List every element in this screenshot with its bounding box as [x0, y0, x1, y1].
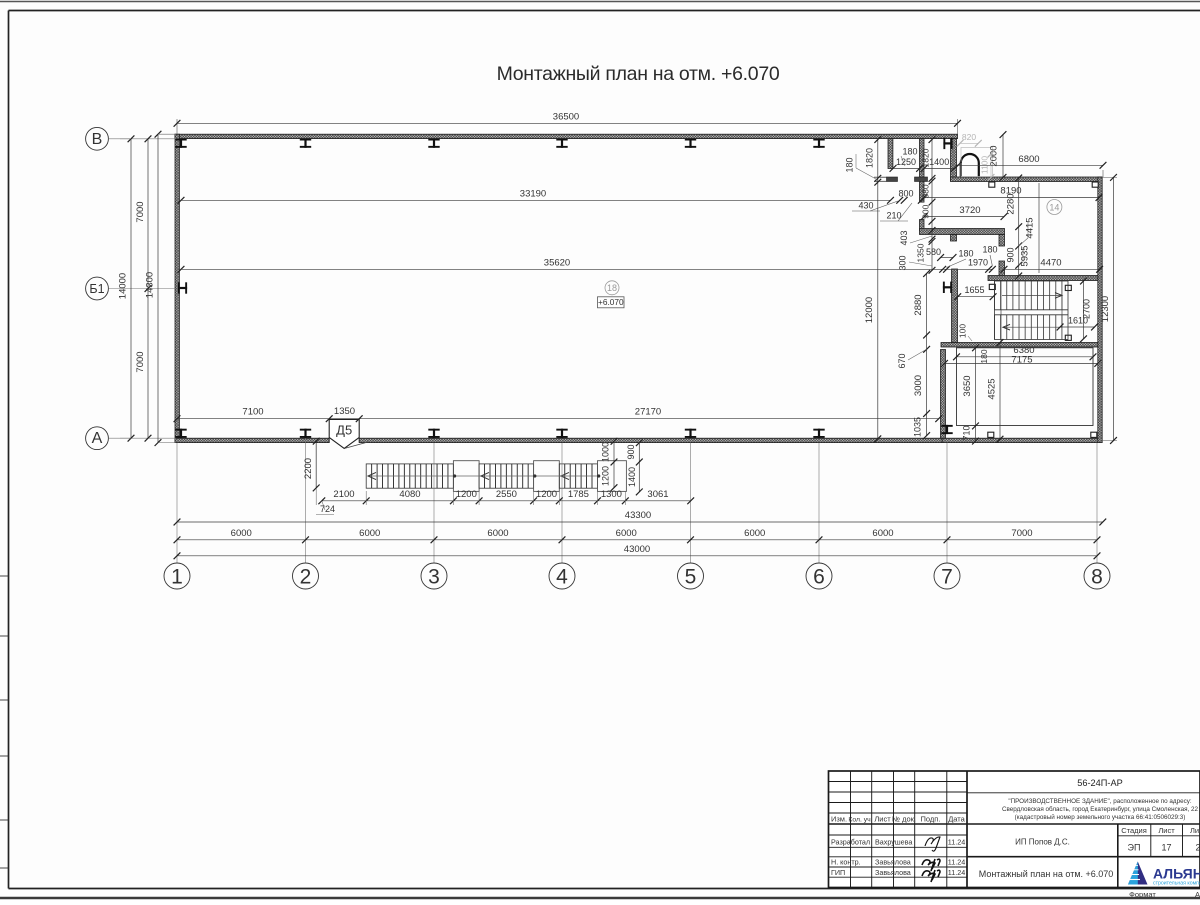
svg-text:14300: 14300 [145, 272, 156, 298]
svg-text:1: 1 [171, 566, 183, 589]
svg-text:820: 820 [962, 132, 976, 142]
svg-text:6000: 6000 [487, 528, 508, 539]
svg-text:Изм.: Изм. [831, 815, 847, 824]
svg-text:Листов: Листов [1190, 826, 1200, 835]
svg-text:3000: 3000 [913, 375, 924, 396]
svg-text:7000: 7000 [1011, 528, 1032, 539]
svg-text:Кол. уч.: Кол. уч. [848, 817, 872, 824]
svg-text:1000: 1000 [601, 442, 611, 462]
svg-text:6000: 6000 [872, 528, 893, 539]
svg-text:4: 4 [556, 566, 568, 589]
svg-text:Монтажный план на отм. +6.070: Монтажный план на отм. +6.070 [979, 869, 1114, 879]
svg-text:Б1: Б1 [89, 282, 104, 296]
svg-text:180: 180 [845, 157, 855, 172]
svg-text:2280: 2280 [1006, 193, 1017, 214]
svg-text:6000: 6000 [616, 528, 637, 539]
svg-text:12300: 12300 [1100, 296, 1111, 322]
svg-text:Дата: Дата [948, 815, 965, 824]
svg-text:11.24: 11.24 [948, 837, 965, 846]
svg-text:ЭП: ЭП [1128, 843, 1141, 853]
svg-text:Н. контр.: Н. контр. [831, 858, 861, 867]
svg-text:8: 8 [1091, 566, 1103, 589]
svg-text:+6.070: +6.070 [598, 297, 624, 307]
svg-text:Стадия: Стадия [1121, 826, 1147, 835]
svg-text:АЛЬЯНС: АЛЬЯНС [1153, 866, 1200, 882]
svg-text:18: 18 [607, 283, 617, 293]
svg-text:1035: 1035 [913, 417, 923, 437]
svg-text:7: 7 [941, 566, 953, 589]
svg-text:7000: 7000 [135, 201, 146, 222]
svg-text:180: 180 [979, 349, 989, 363]
svg-text:724: 724 [320, 504, 335, 514]
svg-text:11.24: 11.24 [948, 868, 965, 877]
svg-text:Завьялова: Завьялова [875, 858, 911, 867]
svg-text:5: 5 [685, 566, 697, 589]
svg-text:Свердловская область, город Ек: Свердловская область, город Екатеринбург… [1002, 805, 1199, 813]
svg-text:300: 300 [898, 255, 908, 270]
svg-text:800: 800 [898, 189, 913, 199]
svg-text:2100: 2100 [333, 489, 354, 500]
svg-text:6: 6 [813, 566, 825, 589]
svg-text:33190: 33190 [520, 189, 546, 200]
svg-text:Разработал: Разработал [831, 837, 870, 846]
svg-text:4080: 4080 [399, 489, 420, 500]
svg-text:27170: 27170 [635, 407, 661, 418]
svg-text:1785: 1785 [568, 489, 589, 500]
svg-text:3720: 3720 [959, 205, 980, 216]
svg-text:5935: 5935 [1020, 245, 1031, 266]
svg-text:ГИП: ГИП [831, 868, 845, 877]
svg-text:3: 3 [428, 566, 440, 589]
svg-text:1200: 1200 [536, 489, 557, 500]
svg-text:35620: 35620 [544, 257, 570, 268]
svg-text:17: 17 [1161, 843, 1171, 853]
svg-text:980: 980 [921, 184, 931, 198]
svg-text:Монтажный план на отм. +6.070: Монтажный план на отм. +6.070 [497, 63, 780, 85]
svg-text:А3: А3 [1195, 890, 1200, 899]
svg-text:"ПРОИЗВОДСТВЕННОЕ ЗДАНИЕ", рас: "ПРОИЗВОДСТВЕННОЕ ЗДАНИЕ", расположенное… [1008, 798, 1192, 805]
svg-text:1820: 1820 [921, 148, 931, 167]
svg-text:(кадастровый номер земельного: (кадастровый номер земельного участка 66… [1015, 813, 1186, 821]
svg-text:А: А [92, 430, 103, 447]
svg-text:4415: 4415 [1025, 217, 1036, 238]
svg-text:180: 180 [982, 245, 997, 255]
svg-text:1350: 1350 [334, 406, 355, 417]
svg-text:2: 2 [300, 566, 312, 589]
svg-text:900: 900 [1006, 247, 1016, 262]
svg-text:1655: 1655 [964, 285, 984, 295]
svg-text:3061: 3061 [647, 489, 668, 500]
svg-text:строительная компания: строительная компания [1153, 880, 1200, 886]
svg-text:710: 710 [962, 425, 972, 440]
svg-text:1820: 1820 [864, 148, 874, 168]
svg-text:2550: 2550 [496, 489, 517, 500]
svg-text:Лист: Лист [874, 815, 891, 824]
svg-text:1400: 1400 [627, 467, 637, 487]
svg-text:6000: 6000 [744, 528, 765, 539]
svg-text:6800: 6800 [1018, 154, 1039, 165]
svg-text:6000: 6000 [359, 528, 380, 539]
svg-text:7100: 7100 [242, 407, 263, 418]
svg-text:430: 430 [858, 201, 873, 211]
svg-text:14: 14 [1049, 202, 1059, 212]
svg-text:3650: 3650 [962, 375, 973, 396]
svg-text:670: 670 [897, 353, 907, 368]
svg-text:Лист: Лист [1158, 826, 1175, 835]
svg-text:Вахрушева: Вахрушева [875, 837, 912, 846]
svg-text:180: 180 [902, 147, 917, 157]
svg-text:900: 900 [626, 444, 636, 459]
svg-text:100: 100 [958, 324, 968, 338]
svg-text:1970: 1970 [968, 258, 988, 268]
svg-text:2880: 2880 [913, 294, 924, 315]
svg-text:403: 403 [899, 230, 909, 245]
svg-text:1250: 1250 [896, 157, 916, 167]
svg-text:№ док.: № док. [892, 815, 916, 824]
svg-text:11.24: 11.24 [948, 858, 965, 867]
svg-text:43300: 43300 [625, 510, 651, 521]
svg-text:7175: 7175 [1011, 354, 1032, 365]
svg-text:1100: 1100 [980, 156, 990, 175]
svg-text:210: 210 [886, 211, 901, 221]
svg-text:ИП Попов Д.С.: ИП Попов Д.С. [1015, 837, 1070, 846]
svg-text:43000: 43000 [624, 544, 650, 555]
svg-text:180: 180 [958, 249, 973, 259]
svg-text:2200: 2200 [303, 458, 314, 479]
svg-text:14000: 14000 [118, 273, 129, 299]
svg-text:1200: 1200 [456, 489, 477, 500]
svg-text:56-24П-АР: 56-24П-АР [1077, 778, 1122, 788]
svg-text:36500: 36500 [553, 112, 579, 123]
svg-text:900: 900 [921, 204, 931, 218]
svg-text:1200: 1200 [601, 466, 611, 486]
svg-text:580: 580 [926, 247, 941, 257]
svg-text:Д5: Д5 [336, 423, 352, 438]
svg-text:4470: 4470 [1040, 258, 1061, 269]
svg-text:6000: 6000 [231, 528, 252, 539]
svg-text:В: В [92, 131, 103, 148]
svg-text:Завьялова: Завьялова [875, 868, 911, 877]
svg-text:2700: 2700 [1082, 299, 1092, 319]
svg-text:2: 2 [1195, 843, 1200, 853]
svg-text:4525: 4525 [987, 378, 998, 399]
svg-text:12000: 12000 [864, 297, 875, 323]
svg-text:Подп.: Подп. [921, 815, 941, 824]
svg-text:7000: 7000 [135, 351, 146, 372]
svg-text:Формат: Формат [1129, 890, 1156, 899]
svg-text:1350: 1350 [916, 243, 926, 262]
svg-text:2000: 2000 [989, 145, 1000, 166]
